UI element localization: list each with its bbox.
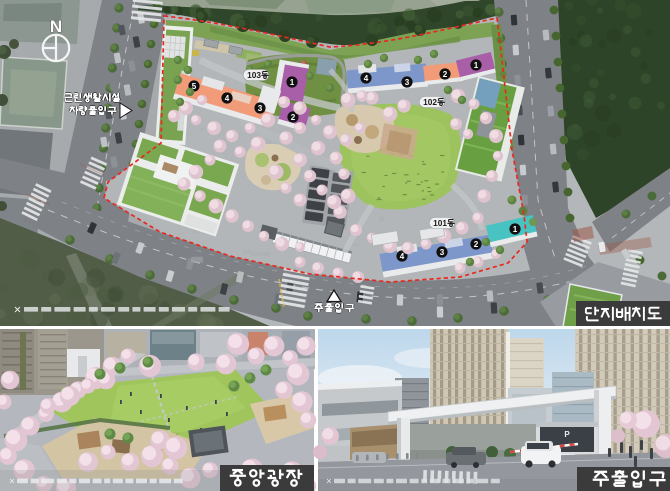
- svg-text:N: N: [50, 17, 62, 36]
- svg-text:P: P: [564, 430, 570, 439]
- svg-text:1: 1: [513, 225, 518, 234]
- svg-text:3: 3: [258, 104, 263, 113]
- svg-text:4: 4: [364, 74, 369, 83]
- svg-text:103: 103: [247, 70, 261, 80]
- svg-text:4: 4: [225, 94, 230, 103]
- svg-text:3: 3: [405, 78, 410, 87]
- svg-text:2: 2: [474, 240, 479, 249]
- svg-text:4: 4: [400, 252, 405, 261]
- svg-text:1: 1: [474, 61, 479, 70]
- svg-text:2: 2: [443, 70, 448, 79]
- svg-text:1: 1: [290, 78, 295, 87]
- svg-text:101: 101: [433, 218, 447, 228]
- svg-text:2: 2: [291, 113, 296, 122]
- svg-text:102: 102: [423, 97, 437, 107]
- svg-text:3: 3: [440, 248, 445, 257]
